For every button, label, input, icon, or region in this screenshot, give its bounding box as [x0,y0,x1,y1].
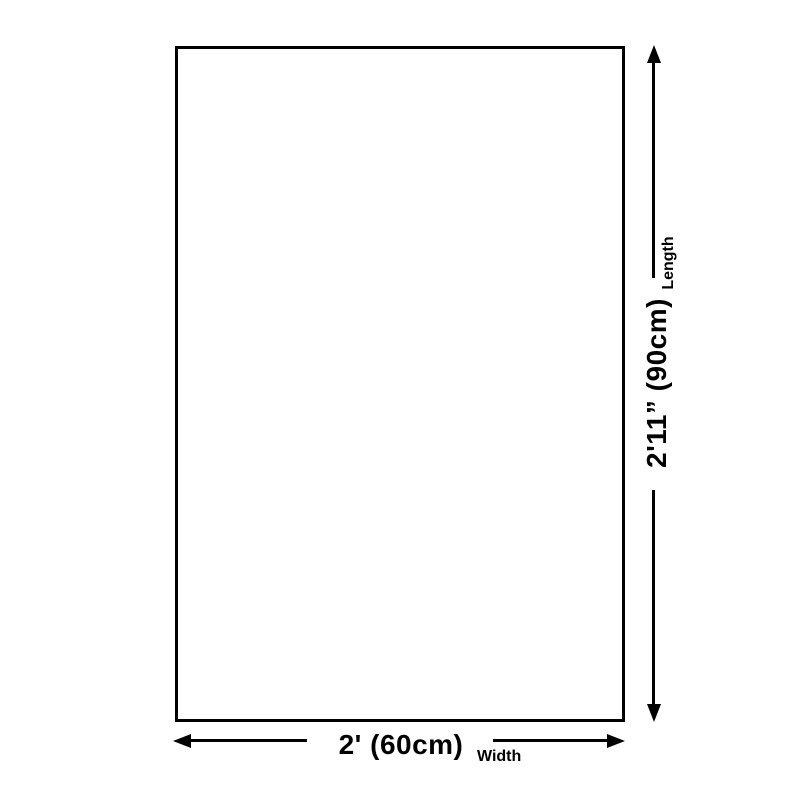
arrow-right-icon [607,734,625,748]
product-outline-rect [175,46,625,722]
length-dimension-value: 2'11” (90cm) [643,298,671,468]
width-arrow-line-right [493,739,610,742]
length-arrow-line-bottom [652,490,655,706]
width-dimension-label: Width [477,749,521,765]
product-size-diagram: 2' (60cm) Width Length 2'11” (90cm) [0,0,800,800]
arrow-down-icon [647,704,661,722]
width-arrow-line-left [188,739,307,742]
length-arrow-line-top [652,61,655,278]
width-dimension-value: 2' (60cm) [339,731,464,759]
length-dimension-label: Length [661,236,677,289]
